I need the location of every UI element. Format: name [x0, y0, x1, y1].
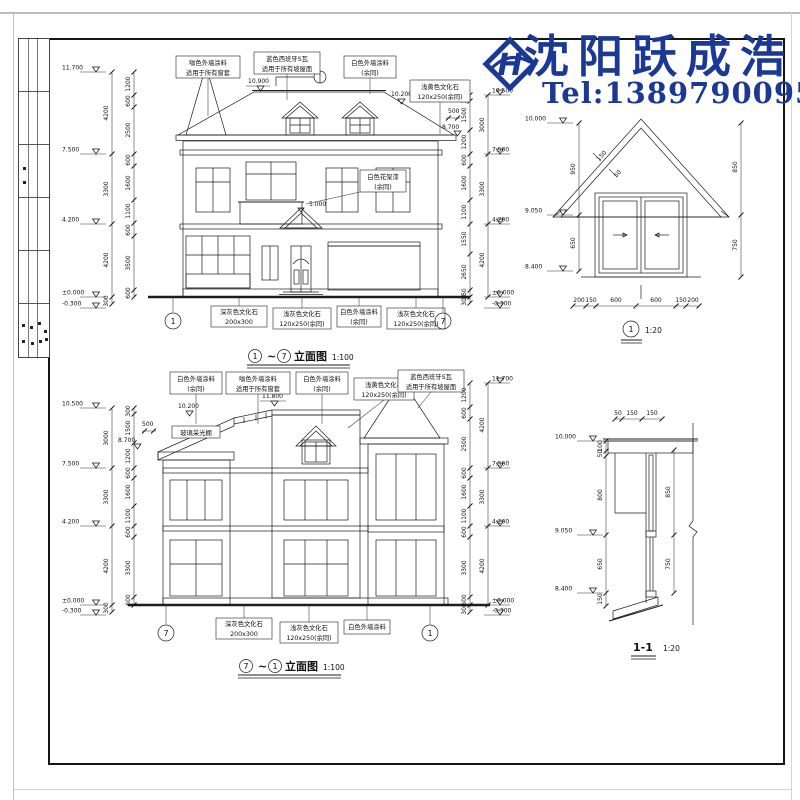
svg-text:白色外墙涂料: 白色外墙涂料: [348, 622, 386, 631]
dim-text: 600: [125, 224, 132, 236]
dim-text: 9.050: [525, 208, 542, 215]
svg-text:1: 1: [252, 352, 257, 361]
small-gable-window: [296, 426, 336, 464]
dim-text: 4200: [479, 252, 486, 267]
material-note: 白色花架漆 (余同): [306, 170, 406, 204]
eave-mark: 8.700: [442, 124, 459, 131]
svg-text:白色外墙涂料: 白色外墙涂料: [351, 58, 389, 67]
level-triangle: [590, 530, 597, 535]
dim-text: 1200: [125, 76, 132, 91]
dim-column: 950650: [570, 121, 582, 274]
dim-text: 600: [461, 526, 468, 538]
entrance: [279, 208, 323, 295]
dim-text: 8.400: [525, 264, 542, 271]
dim-text: ±0.000: [62, 290, 84, 297]
svg-text:120x250(余同): 120x250(余同): [393, 319, 438, 328]
drawing-title: 1-1 1:20: [631, 641, 680, 659]
dim-row: 50150150: [613, 410, 665, 422]
material-note: 深灰色文化石 200x300: [211, 297, 267, 327]
material-note: 浅灰色文化石 120x250(余同): [280, 605, 338, 643]
svg-text:白色外墙涂料: 白色外墙涂料: [177, 374, 215, 383]
dim-text: 10.000: [525, 116, 546, 123]
dim-text: 150: [597, 593, 604, 605]
svg-text:(余同): (余同): [187, 384, 205, 393]
svg-text:1:100: 1:100: [332, 353, 354, 362]
svg-text:~: ~: [258, 660, 267, 673]
svg-text:120x250(余同): 120x250(余同): [279, 319, 324, 328]
left-roof-slope: [158, 418, 234, 460]
level-markers: 10.5007.5004.200±0.000-0.300: [484, 88, 514, 309]
dim-text: 600: [125, 154, 132, 166]
dim-text: 7.500: [492, 147, 509, 154]
dim-column: 850750: [665, 448, 677, 596]
dim-text: 750: [665, 558, 672, 570]
dim-text: 7.500: [62, 147, 79, 154]
dim-column: 850750: [732, 121, 744, 280]
material-note: 咖色外墙涂料 适用于所有窗套: [176, 56, 240, 116]
svg-text:(余同): (余同): [313, 384, 331, 393]
slope-mark: 10.200: [391, 91, 412, 98]
dim-text: 150: [626, 410, 638, 417]
level-triangle: [93, 610, 100, 615]
dim-text: 1600: [125, 484, 132, 499]
dim-text: 1600: [125, 175, 132, 190]
eave-fascia: [176, 135, 456, 141]
dim-text: 1600: [461, 175, 468, 190]
dim-text: 800: [597, 489, 604, 501]
gable-window: [553, 119, 729, 299]
material-note: 蓝色西班牙S瓦 适用于所有坡屋面: [254, 52, 320, 100]
dim-text: 3300: [461, 560, 468, 575]
dim-column: 420033004200300: [103, 70, 115, 307]
drawing-title: 1 ~ 7 立面图 1:100: [247, 349, 354, 368]
material-note: 白色外墙涂料: [344, 605, 390, 634]
material-note: 白色外墙涂料 (余同): [337, 297, 381, 327]
grid-bubble-right: 1: [422, 605, 438, 641]
dormer-right: [342, 102, 378, 135]
dim-text: 600: [125, 594, 132, 606]
level-markers: 11.7007.5004.200±0.000-0.300: [62, 65, 106, 309]
svg-text:白色外墙涂料: 白色外墙涂料: [303, 374, 341, 383]
main-wall: [183, 141, 438, 297]
level-triangle: [93, 403, 100, 408]
dim-text: 11.700: [62, 65, 83, 72]
dim-text: 150: [675, 297, 687, 304]
dim-text: 11.700: [492, 376, 513, 383]
svg-text:白色花架漆: 白色花架漆: [367, 172, 399, 181]
dim-row: 200150600600150200: [571, 297, 702, 309]
dim-text: 1600: [461, 484, 468, 499]
dim-text: 1550: [461, 231, 468, 246]
level-triangle: [93, 149, 100, 154]
strip-cell: [19, 251, 49, 304]
section-1-1-drawing: 50150150 10.0009.0508.400 10050800650150…: [553, 393, 758, 678]
dim-text: 2650: [461, 264, 468, 279]
material-note: 白色外墙涂料 (余同): [344, 56, 396, 94]
svg-text:深灰色文化石: 深灰色文化石: [220, 307, 258, 316]
grid-bubble-left: 7: [158, 605, 174, 641]
dim-text: 1100: [461, 204, 468, 219]
svg-text:(余同): (余同): [361, 68, 379, 77]
window: [170, 480, 222, 520]
svg-text:200x300: 200x300: [225, 319, 253, 326]
dim-text: 600: [461, 154, 468, 166]
sunroom-windows: [186, 236, 250, 288]
dim-text: 1100: [125, 508, 132, 523]
dim-text: 7.500: [62, 461, 79, 468]
strip-cell: [19, 92, 49, 145]
level-triangle: [93, 600, 100, 605]
dim-text: 7.500: [492, 461, 509, 468]
dim-text: ±0.000: [62, 598, 84, 605]
dim-text: 850: [732, 161, 739, 173]
dim-text: 200: [573, 297, 585, 304]
ridge-mark: 10.900: [248, 78, 269, 85]
dim-text: -0.300: [62, 608, 82, 615]
dim-text: 4200: [479, 417, 486, 432]
level-markers: 11.7007.5004.200±0.000-0.300: [484, 376, 514, 616]
eave-dim: 500: [142, 421, 154, 428]
dim-text: 3300: [125, 560, 132, 575]
dim-text: 4200: [103, 105, 110, 120]
entry-mark: 5.000: [309, 201, 326, 208]
svg-text:白色外墙涂料: 白色外墙涂料: [340, 307, 378, 316]
dim-text: 4.200: [62, 519, 79, 526]
dim-text: 950: [570, 163, 577, 175]
svg-text:适用于所有坡屋面: 适用于所有坡屋面: [406, 382, 456, 391]
turret: [360, 372, 448, 605]
dim-column: 300033004200: [479, 93, 491, 300]
svg-text:1: 1: [272, 662, 277, 671]
glass-skylight: [234, 410, 272, 424]
level-triangle: [590, 588, 597, 593]
dim-text: 150: [646, 410, 658, 417]
svg-text:浅灰色文化石: 浅灰色文化石: [290, 623, 328, 632]
dim-text: 1200: [125, 448, 132, 463]
dim-column: 12006002500600160011006003500600: [125, 70, 137, 300]
material-note: 蓝色西班牙S瓦 适用于所有坡屋面: [398, 370, 464, 408]
dim-column: 420033004200: [479, 381, 491, 608]
dim-text: 1200: [461, 387, 468, 402]
dim-text: 600: [461, 467, 468, 479]
dim-text: 50: [597, 450, 604, 458]
material-note: 浅黄色文化石 120x250(余同): [410, 80, 470, 134]
wall-section: [603, 423, 698, 625]
drawing-title: 1 1:20: [621, 321, 662, 343]
svg-text:浅灰色文化石: 浅灰色文化石: [283, 309, 321, 318]
dim-text: 600: [650, 297, 662, 304]
dim-text: 1500: [125, 420, 132, 435]
dim-text: ±0.000: [492, 598, 514, 605]
elevation-1-7-drawing: 420033004200300 120060025006001600110060…: [58, 50, 510, 372]
cornice-7500: [163, 468, 368, 473]
dim-text: 8.400: [555, 586, 572, 593]
svg-text:深灰色文化石: 深灰色文化石: [225, 619, 263, 628]
elevation-7-1-drawing: 玻璃采光棚 11.800 10.200 500 8.700 白色外墙涂料 (余同…: [58, 368, 528, 698]
dim-text: 10.500: [492, 88, 513, 95]
dim-text: ±0.000: [492, 290, 514, 297]
dim-text: 300: [103, 602, 110, 614]
dim-text: 4.200: [62, 217, 79, 224]
cornice-7500: [180, 150, 442, 155]
svg-text:浅黄色文化石: 浅黄色文化石: [365, 380, 403, 389]
dim-text: 4200: [479, 558, 486, 573]
dim-column: 12006002500600160011006003300600300: [461, 381, 473, 615]
svg-text:咖色外墙涂料: 咖色外墙涂料: [189, 58, 227, 67]
garage-panel-wall: [328, 242, 420, 290]
svg-text:7: 7: [243, 662, 248, 671]
dim-text: 3300: [479, 489, 486, 504]
svg-text:立面图: 立面图: [294, 349, 327, 363]
level-triangle: [93, 67, 100, 72]
dim-text: 600: [125, 467, 132, 479]
dim-text: 1500: [461, 107, 468, 122]
dim-text: 300: [125, 405, 132, 417]
strip-cell: [19, 39, 49, 92]
material-note: 浅灰色文化石 120x250(余同): [387, 297, 445, 329]
svg-text:1-1: 1-1: [633, 641, 653, 654]
svg-text:蓝色西班牙S瓦: 蓝色西班牙S瓦: [266, 54, 308, 63]
dim-text: 600: [125, 287, 132, 299]
dim-text: 1100: [125, 203, 132, 218]
dim-text: 650: [570, 237, 577, 249]
svg-text:玻璃采光棚: 玻璃采光棚: [180, 428, 211, 437]
level-triangle: [590, 436, 597, 441]
dim-text: -0.300: [492, 608, 512, 615]
dim-text: 1100: [461, 508, 468, 523]
svg-text:~: ~: [267, 350, 276, 363]
level-triangle: [560, 118, 567, 123]
svg-text:7: 7: [163, 629, 168, 638]
svg-text:浅黄色文化石: 浅黄色文化石: [421, 82, 459, 91]
svg-text:120x250(余同): 120x250(余同): [417, 92, 462, 101]
level-triangle: [93, 463, 100, 468]
dim-text: 300: [461, 294, 468, 306]
left-cornice: [158, 452, 234, 460]
dormer-left: [282, 102, 318, 135]
svg-text:蓝色西班牙S瓦: 蓝色西班牙S瓦: [410, 372, 452, 381]
svg-text:1:100: 1:100: [323, 663, 345, 672]
dim-text: 850: [665, 486, 672, 498]
dim-text: 4.200: [492, 519, 509, 526]
drawing-title: 7 ~ 1 立面图 1:100: [238, 659, 345, 678]
svg-text:(余同): (余同): [350, 317, 368, 326]
material-note: 浅灰色文化石 120x250(余同): [273, 297, 331, 329]
material-note: 深灰色文化石 200x300: [216, 605, 272, 639]
page-right-edge: [791, 12, 792, 800]
svg-text:7: 7: [281, 352, 286, 361]
svg-text:1:20: 1:20: [663, 644, 680, 653]
left-wing-wall: [163, 460, 230, 605]
svg-text:适用于所有窗套: 适用于所有窗套: [236, 384, 281, 393]
dim-column: 300033004200300: [103, 406, 115, 615]
dim-text: -0.300: [62, 301, 82, 308]
material-note: 白色外墙涂料 (余同): [170, 372, 222, 424]
svg-text:适用于所有坡屋面: 适用于所有坡屋面: [262, 64, 312, 73]
level-triangle: [93, 521, 100, 526]
gable-window-detail-drawing: 10.0009.0508.400 950650 850750 150 50 20…: [523, 93, 763, 355]
dim-text: 600: [125, 95, 132, 107]
dim-text: 50: [614, 410, 622, 417]
dim-text: 4200: [103, 252, 110, 267]
dim-text: 3000: [103, 430, 110, 445]
level-triangle: [93, 292, 100, 297]
strip-cell: [19, 304, 49, 355]
dim-text: 3500: [125, 255, 132, 270]
page-left-edge: [13, 12, 14, 800]
level-triangle: [93, 303, 100, 308]
dim-text: 1200: [461, 134, 468, 149]
dim-text: 4200: [103, 558, 110, 573]
dim-text: 2500: [461, 436, 468, 451]
page-bottom-edge: [13, 789, 792, 790]
window: [284, 540, 348, 596]
dim-text: 150: [585, 297, 597, 304]
dim-text: 3300: [479, 181, 486, 196]
level-triangle: [93, 219, 100, 224]
eave-mark: 8.700: [118, 437, 135, 444]
dim-column: 30015001200600160011006003300600: [125, 405, 137, 607]
svg-text:1:20: 1:20: [645, 326, 662, 335]
dim-text: 750: [732, 239, 739, 251]
svg-text:咖色外墙涂料: 咖色外墙涂料: [239, 374, 277, 383]
skylight-label: 玻璃采光棚: [172, 426, 220, 438]
svg-text:(余同): (余同): [374, 182, 392, 191]
svg-text:适用于所有窗套: 适用于所有窗套: [186, 68, 231, 77]
dim-text: 3300: [103, 181, 110, 196]
svg-text:1: 1: [170, 317, 175, 326]
title-block-strip: [18, 38, 50, 358]
dim-text: 2500: [125, 122, 132, 137]
dim-text: 3000: [479, 117, 486, 132]
window: [284, 480, 348, 520]
dim-text: 650: [597, 558, 604, 570]
svg-text:1: 1: [628, 325, 633, 334]
drawing-sheet: { "watermark": { "brand": "沈阳跃成浩", "tel"…: [0, 0, 800, 800]
dim-text: 200: [687, 297, 699, 304]
dim-column: 10050800650150: [597, 439, 609, 609]
dim-text: 4.200: [492, 217, 509, 224]
dim-column: 300150012006001600110015502650150300: [461, 92, 473, 306]
dim-text: 9.050: [555, 528, 572, 535]
strip-cell: [19, 198, 49, 251]
strip-cell: [19, 145, 49, 198]
dim-text: 10.500: [62, 401, 83, 408]
dim-text: 600: [610, 297, 622, 304]
dim-text: 10.000: [555, 434, 576, 441]
dim-text: 300: [461, 603, 468, 615]
eave-dim: 500: [448, 108, 460, 115]
dim-text: 3300: [103, 489, 110, 504]
svg-text:7: 7: [440, 317, 445, 326]
level-markers: 10.5007.5004.200±0.000-0.300: [62, 401, 106, 616]
svg-text:200x300: 200x300: [230, 631, 258, 638]
level-triangle: [560, 266, 567, 271]
svg-text:浅灰色文化石: 浅灰色文化石: [397, 309, 435, 318]
svg-text:150: 150: [595, 149, 608, 162]
dim-text: 600: [461, 407, 468, 419]
page-top-edge: [0, 12, 800, 14]
svg-text:立面图: 立面图: [285, 659, 318, 673]
level-markers: 10.0009.0508.400: [555, 434, 603, 594]
svg-text:120x250(余同): 120x250(余同): [286, 633, 331, 642]
material-note: 白色外墙涂料 (余同): [296, 372, 348, 424]
floor-band-4200: [163, 526, 368, 531]
level-markers: 10.0009.0508.400: [525, 116, 573, 272]
grid-bubble-left: 1: [165, 297, 181, 329]
dim-text: 600: [125, 526, 132, 538]
dim-text: -0.300: [492, 301, 512, 308]
parapet: [272, 410, 360, 415]
svg-text:1: 1: [427, 629, 432, 638]
